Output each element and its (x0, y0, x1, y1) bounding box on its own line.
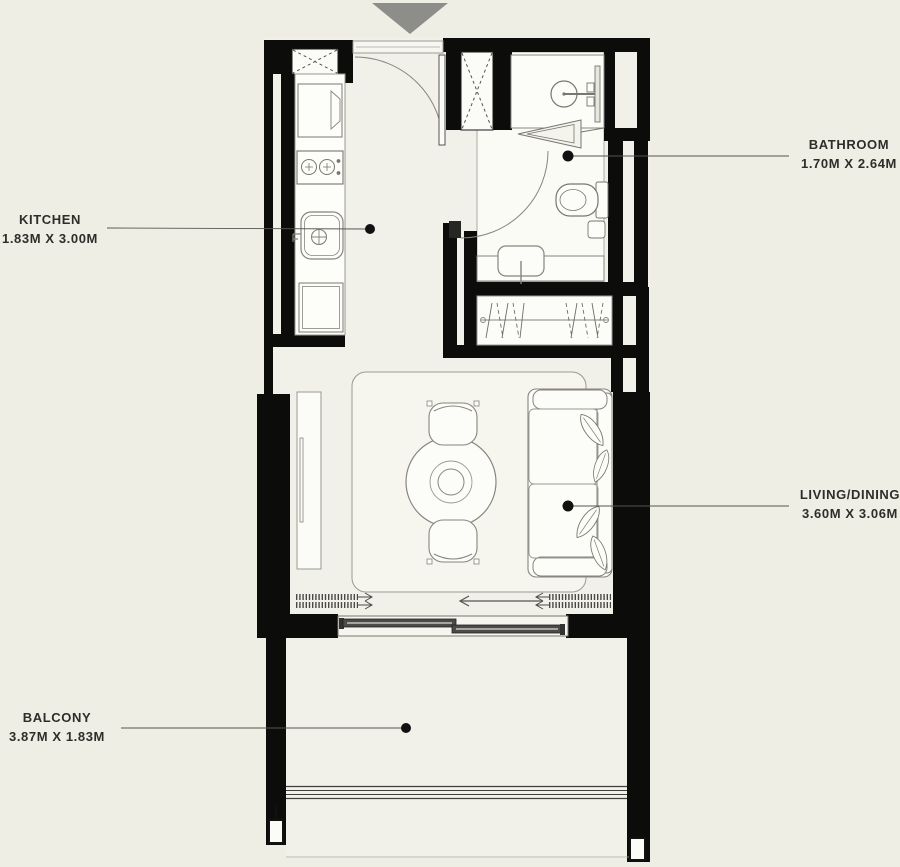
shower (511, 55, 604, 128)
balcony-label: BALCONY 3.87M X 1.83M (9, 709, 105, 747)
living-dining-label-name: LIVING/DINING (800, 487, 900, 502)
kitchen-label: KITCHEN 1.83M X 3.00M (2, 211, 98, 249)
entrance-arrow-icon (372, 3, 448, 34)
utility-shaft-kitchen (292, 49, 338, 74)
kitchen-label-dimensions: 1.83M X 3.00M (2, 230, 98, 249)
fridge (298, 84, 342, 137)
tv-console (297, 392, 321, 569)
dining-table (406, 437, 496, 527)
sliding-door (338, 616, 568, 636)
dining-chair-bottom (427, 520, 479, 564)
utility-shaft-entry (461, 52, 493, 130)
entry-threshold (353, 41, 443, 53)
living-dining-label: LIVING/DINING 3.60M X 3.06M (800, 486, 900, 524)
stove (297, 151, 343, 184)
toilet (556, 182, 608, 218)
bathroom-label-name: BATHROOM (809, 137, 889, 152)
wardrobe (477, 296, 612, 345)
toilet-roll-holder (588, 221, 605, 238)
floor-plan-canvas (0, 0, 900, 867)
kitchen-label-name: KITCHEN (19, 212, 81, 227)
living-dining-label-dimensions: 3.60M X 3.06M (800, 505, 900, 524)
wall-slot (457, 237, 464, 336)
balcony-label-dimensions: 3.87M X 1.83M (9, 728, 105, 747)
balcony-label-name: BALCONY (23, 710, 91, 725)
bathroom-label-dimensions: 1.70M X 2.64M (801, 155, 897, 174)
dining-chair-top (427, 401, 479, 445)
bathroom-label: BATHROOM 1.70M X 2.64M (801, 136, 897, 174)
floor-plan: KITCHEN 1.83M X 3.00M BATHROOM 1.70M X 2… (0, 0, 900, 867)
base-cabinet (299, 283, 343, 332)
